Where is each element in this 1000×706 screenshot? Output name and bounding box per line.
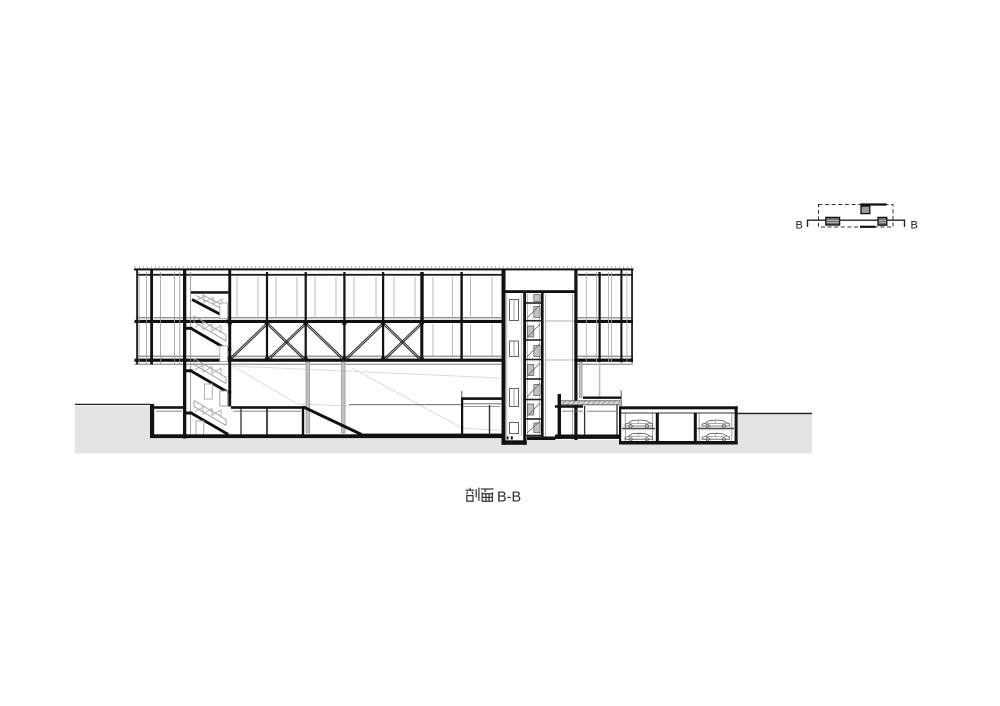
svg-text:B: B [796,220,803,232]
svg-text:B-B: B-B [497,490,521,506]
svg-text:B: B [911,220,918,232]
